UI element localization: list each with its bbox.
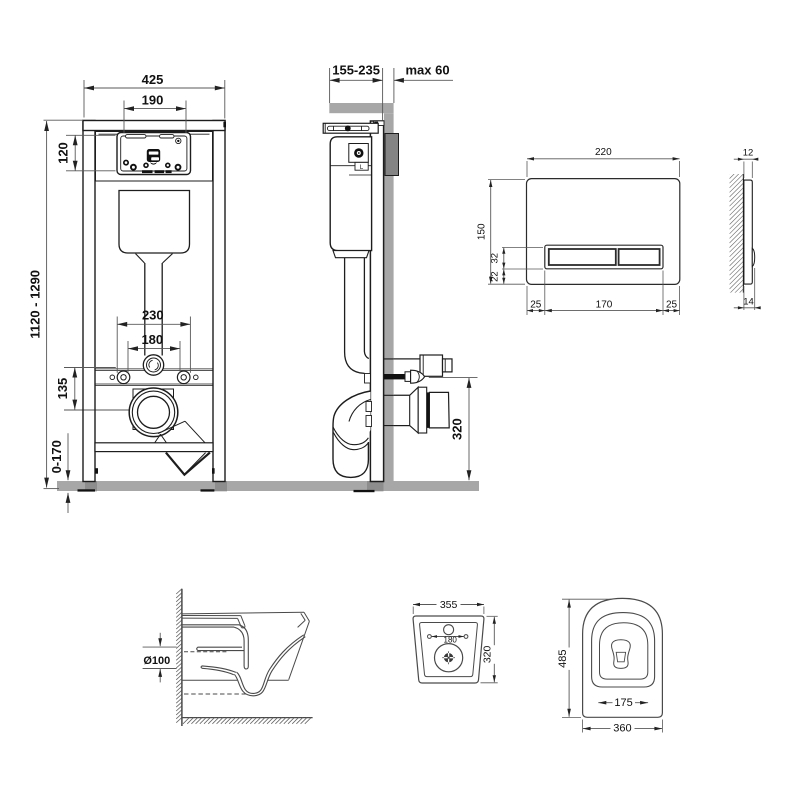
svg-text:485: 485 — [557, 650, 569, 668]
svg-text:175: 175 — [614, 697, 632, 709]
svg-text:355: 355 — [440, 599, 458, 611]
svg-text:320: 320 — [450, 418, 465, 440]
svg-text:220: 220 — [595, 147, 612, 158]
svg-text:Ø100: Ø100 — [143, 655, 170, 667]
svg-text:190: 190 — [142, 93, 164, 108]
svg-text:12: 12 — [743, 148, 754, 159]
svg-text:0-170: 0-170 — [49, 440, 64, 473]
svg-text:180: 180 — [141, 332, 163, 347]
svg-text:25: 25 — [530, 299, 542, 310]
svg-text:22: 22 — [489, 271, 500, 282]
svg-text:32: 32 — [489, 253, 500, 264]
svg-text:360: 360 — [613, 722, 631, 734]
svg-text:150: 150 — [477, 223, 488, 240]
svg-text:1120 - 1290: 1120 - 1290 — [28, 270, 43, 339]
svg-text:14: 14 — [743, 297, 754, 308]
svg-text:320: 320 — [482, 645, 494, 663]
svg-text:155-235: 155-235 — [332, 63, 380, 78]
svg-text:120: 120 — [56, 142, 71, 164]
svg-text:425: 425 — [142, 72, 164, 87]
svg-text:230: 230 — [142, 308, 164, 323]
svg-text:25: 25 — [666, 299, 678, 310]
svg-text:135: 135 — [55, 378, 70, 400]
svg-text:170: 170 — [596, 299, 613, 310]
svg-text:max 60: max 60 — [405, 63, 449, 78]
